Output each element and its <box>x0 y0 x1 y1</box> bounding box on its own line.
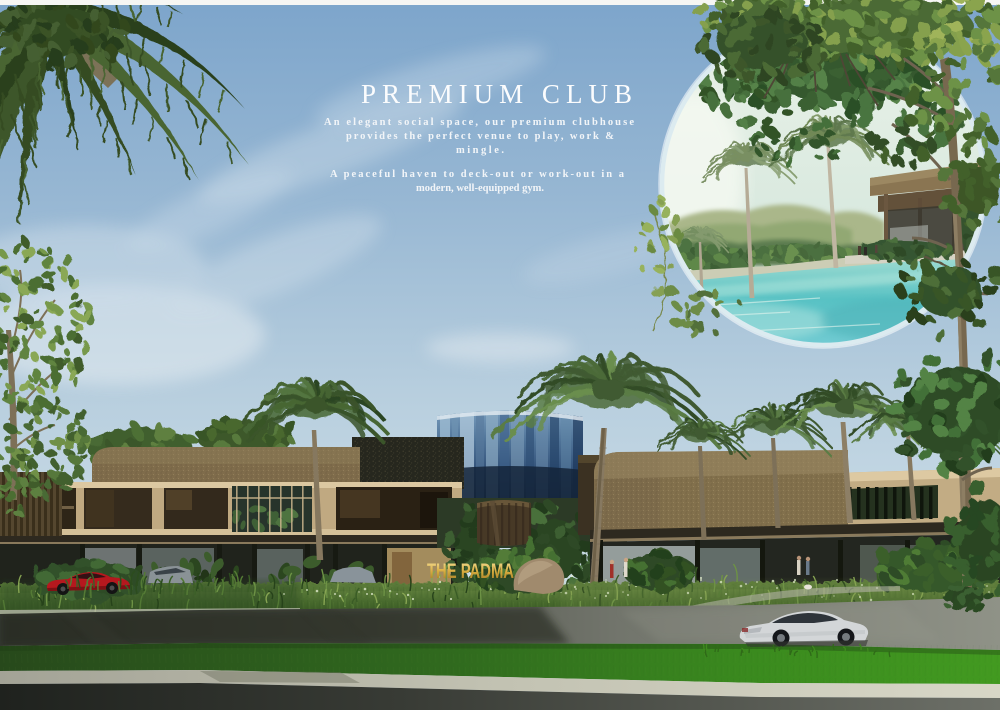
svg-text:THE PADMA: THE PADMA <box>427 560 514 583</box>
svg-text:modern, well-equipped gym.: modern, well-equipped gym. <box>416 183 544 194</box>
svg-text:mingle.: mingle. <box>456 145 504 156</box>
svg-text:A peaceful haven to deck-out o: A peaceful haven to deck-out or work-out… <box>330 169 625 180</box>
svg-text:provides the perfect venue to: provides the perfect venue to play, work… <box>346 131 614 142</box>
